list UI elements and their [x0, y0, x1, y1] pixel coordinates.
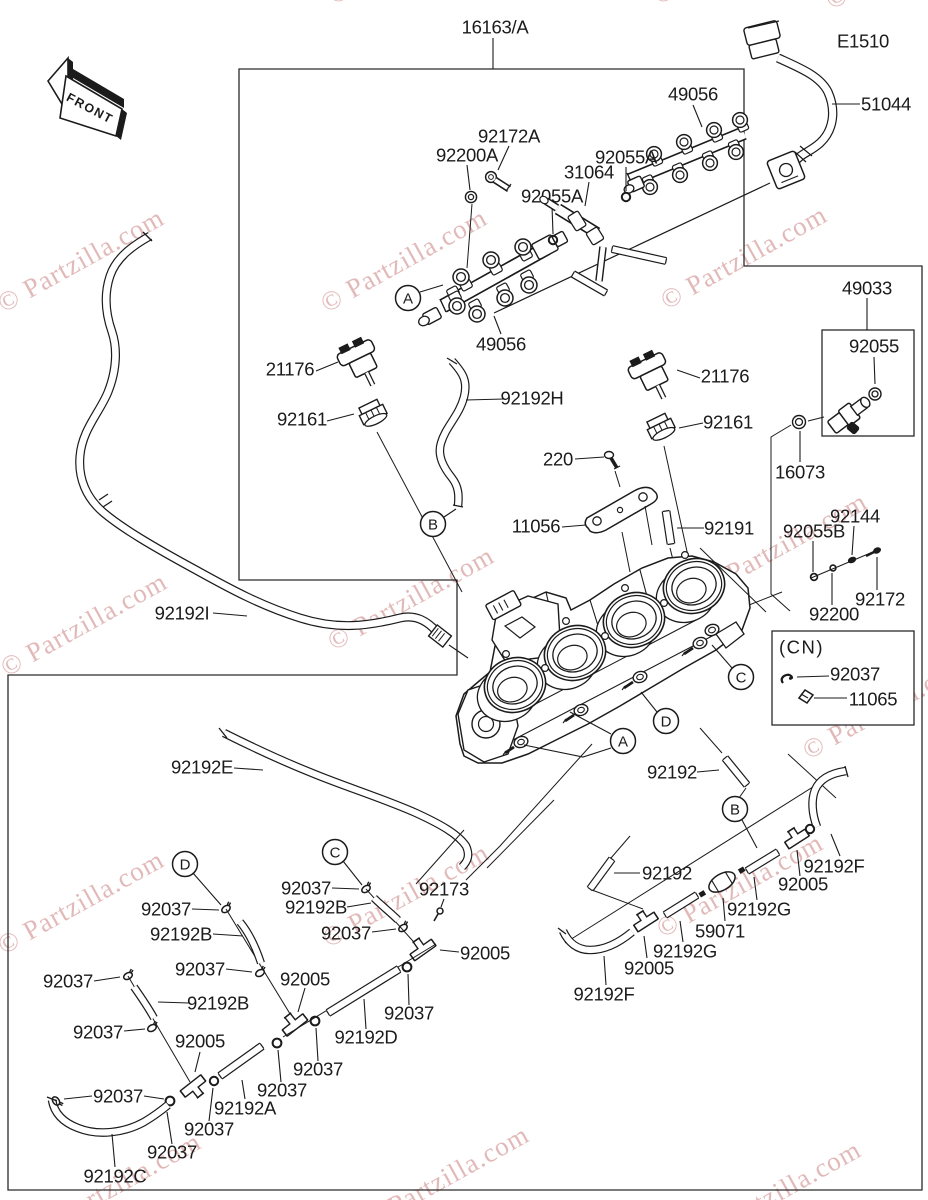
svg-text:11056: 11056 — [512, 515, 561, 536]
svg-text:92191: 92191 — [704, 517, 754, 538]
svg-text:C: C — [736, 670, 747, 687]
svg-text:D: D — [180, 857, 191, 874]
svg-text:92192: 92192 — [642, 862, 692, 883]
svg-text:49033: 49033 — [842, 277, 892, 298]
svg-text:92037: 92037 — [293, 1058, 343, 1079]
svg-text:A: A — [403, 291, 413, 308]
svg-text:92037: 92037 — [93, 1085, 143, 1106]
svg-text:92192F: 92192F — [574, 983, 635, 1004]
svg-text:C: C — [330, 845, 341, 862]
svg-text:92192I: 92192I — [155, 602, 210, 623]
svg-text:59071: 59071 — [695, 920, 745, 941]
svg-text:92037: 92037 — [281, 877, 331, 898]
svg-text:92037: 92037 — [141, 898, 191, 919]
svg-text:16073: 16073 — [775, 461, 825, 482]
svg-text:92192A: 92192A — [214, 1097, 277, 1118]
svg-text:92037: 92037 — [184, 1118, 234, 1139]
svg-text:16163/A: 16163/A — [462, 16, 530, 37]
svg-text:92005: 92005 — [280, 968, 330, 989]
svg-text:92005: 92005 — [624, 957, 674, 978]
svg-text:(CN): (CN) — [779, 637, 824, 658]
svg-text:49056: 49056 — [476, 333, 526, 354]
svg-text:B: B — [730, 802, 740, 819]
svg-text:92192C: 92192C — [83, 1165, 146, 1186]
svg-text:92005: 92005 — [778, 873, 828, 894]
svg-text:92192B: 92192B — [285, 896, 347, 917]
svg-text:E1510: E1510 — [837, 30, 889, 51]
svg-text:51044: 51044 — [861, 93, 911, 114]
svg-text:21176: 21176 — [701, 365, 750, 386]
svg-text:92192H: 92192H — [500, 387, 563, 408]
svg-text:11065: 11065 — [849, 688, 898, 709]
svg-text:B: B — [428, 517, 438, 534]
svg-text:92037: 92037 — [321, 922, 371, 943]
svg-text:92192D: 92192D — [334, 1026, 397, 1047]
svg-text:92192: 92192 — [647, 761, 697, 782]
svg-text:92161: 92161 — [277, 408, 327, 429]
svg-text:49056: 49056 — [668, 83, 718, 104]
svg-text:92200A: 92200A — [436, 144, 499, 165]
svg-text:92173: 92173 — [419, 878, 469, 899]
svg-text:92037: 92037 — [147, 1141, 197, 1162]
svg-text:92037: 92037 — [830, 663, 880, 684]
svg-text:92172: 92172 — [855, 588, 905, 609]
svg-text:92005: 92005 — [460, 942, 510, 963]
svg-text:92192G: 92192G — [727, 898, 791, 919]
svg-text:92172A: 92172A — [478, 125, 541, 146]
svg-text:92037: 92037 — [73, 1021, 123, 1042]
svg-text:220: 220 — [543, 448, 573, 469]
svg-text:92037: 92037 — [384, 1002, 434, 1023]
svg-text:92200: 92200 — [809, 603, 859, 624]
svg-text:A: A — [618, 734, 628, 751]
svg-text:92037: 92037 — [175, 958, 225, 979]
svg-text:92192E: 92192E — [171, 756, 233, 777]
svg-text:92192B: 92192B — [187, 992, 249, 1013]
svg-text:92055: 92055 — [849, 335, 899, 356]
svg-text:92161: 92161 — [703, 411, 753, 432]
svg-text:92037: 92037 — [43, 970, 93, 991]
svg-text:21176: 21176 — [266, 358, 315, 379]
svg-text:D: D — [661, 714, 672, 731]
svg-text:92005: 92005 — [175, 1030, 225, 1051]
svg-text:92144: 92144 — [830, 505, 880, 526]
svg-text:31064: 31064 — [564, 161, 614, 182]
svg-text:92192B: 92192B — [150, 923, 212, 944]
